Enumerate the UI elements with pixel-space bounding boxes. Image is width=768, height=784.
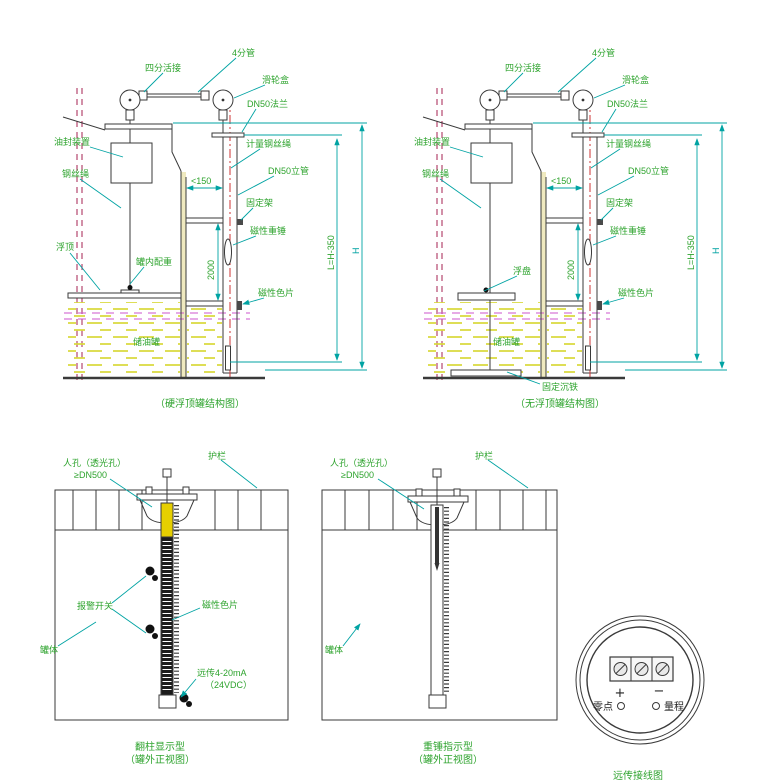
manhole-plate — [408, 496, 468, 502]
riser-slot — [226, 346, 231, 370]
diagram-no-floating-roof-tank: 四分活接 4分管 滑轮盒 DN50法兰 油封装置 钢丝绳 浮盘 固定沉铁 计量钢… — [414, 47, 727, 410]
caption-view: （罐外正视图） — [125, 753, 195, 766]
diagram-hard-floating-roof-tank: 四分活接 4分管 滑轮盒 DN50法兰 油封装置 钢丝绳 浮顶 罐内配重 计量钢… — [54, 47, 367, 410]
manhole-bolt-left — [416, 489, 422, 496]
caption-no-roof: （无浮顶罐结构图） — [515, 397, 605, 410]
pulley-left-hanger — [486, 110, 494, 120]
magnetic-chip — [237, 301, 242, 310]
counterweight — [128, 285, 133, 290]
label-union: 四分活接 — [145, 62, 181, 73]
caption-wiring: 远传接线图 — [613, 769, 663, 782]
terminal-screw-3 — [656, 663, 669, 676]
label-manhole: 人孔（透光孔） — [330, 457, 393, 468]
dim-gap: <150 — [551, 176, 571, 186]
label-magnet-hammer: 磁性重锤 — [610, 225, 646, 236]
engineering-drawing: 四分活接 4分管 滑轮盒 DN50法兰 油封装置 钢丝绳 浮顶 罐内配重 计量钢… — [0, 0, 768, 784]
dim-beam: 2000 — [566, 260, 576, 280]
label-measure-rope: 计量钢丝绳 — [606, 138, 651, 149]
pulley-left-axle — [489, 99, 492, 102]
crossbeam-upper — [186, 218, 223, 223]
magnetic-chip — [597, 301, 602, 310]
manhole-bolt-left — [146, 487, 152, 494]
label-magnet-chip: 磁性色片 — [618, 287, 654, 298]
label-oil-seal: 油封装置 — [414, 136, 450, 147]
caption-type: 翻柱显示型 — [135, 740, 185, 753]
label-measure-rope: 计量钢丝绳 — [246, 138, 291, 149]
union-right — [201, 91, 209, 100]
riser-slot — [586, 346, 591, 370]
label-manhole-size: ≥DN500 — [74, 470, 107, 480]
oil-seal-box — [111, 143, 152, 183]
magnetic-hammer — [585, 239, 592, 265]
dim-height: H — [711, 248, 721, 255]
label-riser: DN50立管 — [628, 165, 669, 176]
oil-seal-box — [471, 143, 512, 183]
label-manhole-size: ≥DN500 — [341, 470, 374, 480]
pulley-right-axle — [582, 99, 585, 102]
fixing-bracket — [237, 219, 243, 225]
diagram-flip-column-front-view: 人孔（透光孔） ≥DN500 护栏 报警开关 罐体 磁性色片 远传4-20mA … — [40, 450, 288, 766]
label-float-plate: 浮盘 — [513, 265, 531, 276]
tank-roof-plate — [465, 124, 532, 129]
manhole-bolt-right — [454, 489, 460, 496]
label-union: 四分活接 — [505, 62, 541, 73]
label-flange: DN50法兰 — [247, 98, 288, 109]
tube-bottom-box — [429, 695, 446, 708]
hammer-rod — [435, 507, 439, 563]
terminal-screw-2 — [635, 663, 648, 676]
caption-view: （罐外正视图） — [413, 753, 483, 766]
label-float-roof: 浮顶 — [56, 241, 74, 252]
label-oil-seal: 油封装置 — [54, 136, 90, 147]
label-tank: 储油罐 — [133, 336, 160, 347]
terminal-minus: − — [654, 684, 665, 699]
label-vdc: （24VDC） — [205, 680, 252, 690]
dim-len: L=H-350 — [326, 235, 336, 270]
label-flange: DN50法兰 — [607, 98, 648, 109]
guide-rod-cap — [163, 469, 171, 477]
label-tank-body: 罐体 — [40, 644, 58, 655]
label-wire-rope: 钢丝绳 — [422, 168, 449, 179]
label-leaders — [70, 58, 274, 304]
label-rail: 护栏 — [475, 450, 493, 461]
pulley-right-axle — [222, 99, 225, 102]
label-anchor: 固定沉铁 — [542, 381, 578, 392]
label-zero: 零点 — [593, 701, 613, 713]
diagram-remote-wiring: + − 零点 量程 远传接线图 — [576, 616, 704, 782]
label-magnet-hammer: 磁性重锤 — [250, 225, 286, 236]
tank-wall-hatch — [181, 172, 186, 378]
dn50-flange — [572, 133, 604, 137]
label-manhole: 人孔（透光孔） — [63, 457, 126, 468]
indicator-column-yellow — [161, 503, 173, 537]
floating-roof-deck — [68, 293, 181, 298]
guide-rod-cap — [433, 469, 441, 477]
label-tank: 储油罐 — [493, 336, 520, 347]
label-wire-rope: 钢丝绳 — [62, 168, 89, 179]
terminal-plus: + — [615, 686, 626, 701]
dim-beam: 2000 — [206, 260, 216, 280]
zero-adjust-hole — [618, 703, 625, 710]
magnetic-hammer — [225, 239, 232, 265]
label-tank-body: 罐体 — [325, 644, 343, 655]
span-adjust-hole — [653, 703, 660, 710]
dn50-flange — [212, 133, 244, 137]
label-remote: 远传4-20mA — [197, 667, 247, 678]
caption-type: 重锤指示型 — [423, 740, 473, 753]
label-pipe: 4分管 — [592, 47, 615, 58]
label-bracket: 固定架 — [246, 197, 273, 208]
dim-height: H — [351, 248, 361, 255]
manhole-bolt-right — [183, 487, 189, 494]
indicator-column-dark — [161, 537, 173, 695]
label-magnet-chip: 磁性色片 — [258, 287, 294, 298]
label-alarm: 报警开关 — [77, 600, 113, 611]
union-right — [561, 91, 569, 100]
pulley-left-hanger — [126, 110, 134, 120]
crossbeam-lower — [546, 301, 583, 306]
label-inner-weight: 罐内配重 — [136, 256, 172, 267]
pulley-right-hanger — [219, 110, 227, 120]
label-pipe: 4分管 — [232, 47, 255, 58]
label-rail: 护栏 — [208, 450, 226, 461]
label-bracket: 固定架 — [606, 197, 633, 208]
label-span: 量程 — [664, 701, 684, 713]
pulley-left-axle — [129, 99, 132, 102]
label-chip: 磁性色片 — [202, 599, 238, 610]
diagram-hammer-front-view: 人孔（透光孔） ≥DN500 护栏 罐体 重锤指示型 （罐外正视图） — [322, 450, 557, 766]
pulley-right-hanger — [579, 110, 587, 120]
column-bottom-box — [159, 695, 176, 708]
counterweight-base — [121, 290, 139, 293]
dim-len: L=H-350 — [686, 235, 696, 270]
caption-hard-roof: （硬浮顶罐结构图） — [155, 397, 245, 410]
tank-roof-plate — [105, 124, 172, 129]
label-pulley-box: 滑轮盒 — [262, 74, 289, 85]
terminal-screw-1 — [614, 663, 627, 676]
label-pulley-box: 滑轮盒 — [622, 74, 649, 85]
float-plate — [458, 293, 515, 300]
crossbeam-upper — [546, 218, 583, 223]
dim-gap: <150 — [191, 176, 211, 186]
tank-wall-hatch — [541, 172, 546, 378]
label-riser: DN50立管 — [268, 165, 309, 176]
fixing-bracket — [597, 219, 603, 225]
crossbeam-lower — [186, 301, 223, 306]
drawing-canvas: 四分活接 4分管 滑轮盒 DN50法兰 油封装置 钢丝绳 浮顶 罐内配重 计量钢… — [0, 0, 768, 784]
